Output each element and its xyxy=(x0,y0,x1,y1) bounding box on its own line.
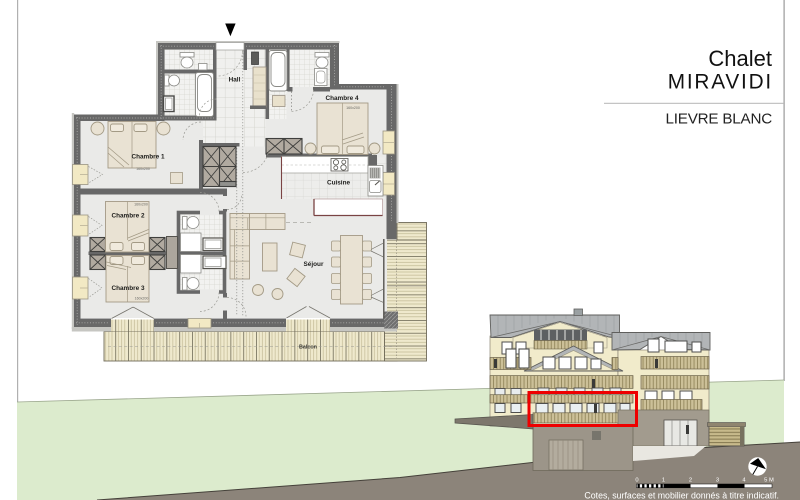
svg-text:Cotes, surfaces et mobilier do: Cotes, surfaces et mobilier donnés à tit… xyxy=(584,491,779,500)
svg-text:Chambre 2: Chambre 2 xyxy=(111,213,144,220)
svg-text:Séjour: Séjour xyxy=(304,261,324,268)
svg-text:0: 0 xyxy=(635,478,638,484)
svg-text:2: 2 xyxy=(689,478,692,484)
svg-text:Chalet: Chalet xyxy=(708,46,772,71)
svg-text:Balcon: Balcon xyxy=(299,345,317,351)
svg-text:Chambre 3: Chambre 3 xyxy=(111,285,144,292)
svg-text:1: 1 xyxy=(662,478,665,484)
svg-text:LIEVRE BLANC: LIEVRE BLANC xyxy=(666,111,773,128)
svg-text:Chambre 4: Chambre 4 xyxy=(325,95,358,102)
svg-text:5 M: 5 M xyxy=(764,478,774,484)
svg-text:MIRAVIDI: MIRAVIDI xyxy=(668,71,773,94)
svg-text:160x200: 160x200 xyxy=(134,203,148,207)
svg-text:160x200: 160x200 xyxy=(135,297,149,301)
svg-text:160x200: 160x200 xyxy=(136,167,150,171)
svg-text:3: 3 xyxy=(716,478,719,484)
svg-text:Hall: Hall xyxy=(229,77,241,84)
svg-text:Chambre 1: Chambre 1 xyxy=(131,154,164,161)
svg-text:Cuisine: Cuisine xyxy=(327,180,351,187)
svg-text:160x200: 160x200 xyxy=(346,106,360,110)
